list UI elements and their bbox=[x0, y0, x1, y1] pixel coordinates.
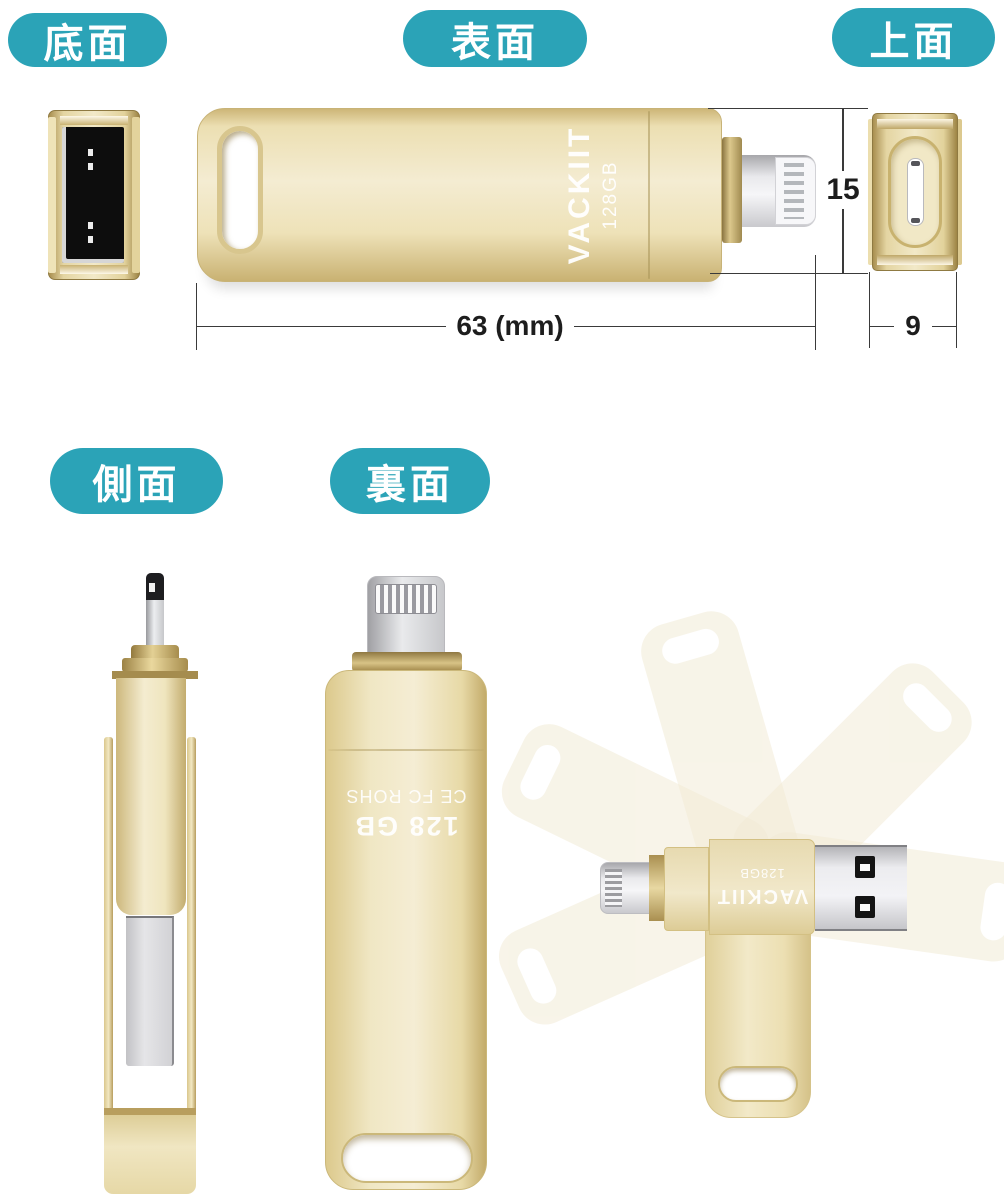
usb-contact-pin bbox=[88, 236, 93, 243]
side-frame-bottom bbox=[104, 1108, 196, 1194]
usb-contact-pin bbox=[88, 149, 93, 156]
bottom-view-right-rail bbox=[132, 117, 140, 273]
dim-15-ext-bottom bbox=[710, 273, 868, 274]
usb-hole-notch bbox=[860, 864, 870, 871]
label-side-view: 側面 bbox=[50, 448, 223, 514]
dim-63-tick-right bbox=[815, 255, 816, 350]
top-view-top-band bbox=[877, 119, 953, 129]
side-frame-arm-right bbox=[187, 737, 196, 1109]
back-print-block: 128 GB CE FC ROHS bbox=[326, 771, 486, 855]
label-front-view: 表面 bbox=[403, 10, 587, 67]
front-keyring-hole bbox=[217, 126, 263, 254]
side-usb-plug bbox=[126, 916, 174, 1066]
side-lightning-tip bbox=[146, 573, 164, 600]
dim-15-ext-top bbox=[708, 108, 868, 109]
back-capacity-text: 128 GB bbox=[353, 810, 458, 841]
front-view-swivel-seam bbox=[648, 111, 650, 279]
tongue-end-cap bbox=[911, 218, 920, 223]
label-back-view: 裏面 bbox=[330, 448, 490, 514]
front-lightning-tip bbox=[775, 157, 816, 225]
side-collar-step2 bbox=[122, 658, 188, 672]
top-view-body bbox=[872, 113, 958, 271]
dim-63-tick-left bbox=[196, 283, 197, 350]
label-front-view-text: 表面 bbox=[451, 10, 539, 68]
back-swivel-seam bbox=[328, 749, 484, 751]
ghost-keyring-hole bbox=[659, 626, 722, 667]
front-brand-text: VACKIIT bbox=[563, 126, 597, 265]
usb-hole-notch bbox=[860, 904, 870, 911]
product-diagram: 底面 表面 上面 側面 裏面 VACKIIT 128GB 15 63 (mm bbox=[0, 0, 1004, 1200]
side-lightning-notch bbox=[149, 583, 155, 592]
bottom-view-bottom-band bbox=[60, 265, 128, 274]
lightning-pins bbox=[375, 584, 437, 614]
front-view-body bbox=[197, 108, 722, 282]
label-bottom-view: 底面 bbox=[8, 13, 167, 67]
ghost-keyring-hole bbox=[898, 678, 957, 737]
label-bottom-view-text: 底面 bbox=[44, 11, 132, 69]
dim-9-tick-left bbox=[869, 272, 870, 348]
bottom-view-top-band bbox=[60, 116, 128, 125]
top-view-bottom-band bbox=[877, 255, 953, 265]
rotation-print-block: VACKIIT 128GB bbox=[710, 840, 814, 934]
ghost-keyring-hole bbox=[979, 881, 1004, 942]
label-top-view-text: 上面 bbox=[870, 9, 958, 67]
ghost-keyring-hole bbox=[516, 741, 565, 805]
back-lightning-collar bbox=[352, 652, 462, 672]
label-top-view: 上面 bbox=[832, 8, 995, 67]
usb-socket-opening bbox=[62, 127, 124, 263]
rotation-main-body: VACKIIT 128GB bbox=[709, 839, 815, 935]
dim-9-tick-right bbox=[956, 272, 957, 348]
usb-plug-hole bbox=[855, 856, 875, 878]
rotation-collar-block bbox=[664, 847, 709, 931]
label-back-view-text: 裏面 bbox=[366, 452, 454, 510]
rotation-brand-text: VACKIIT bbox=[716, 885, 809, 908]
rotation-capacity-text: 128GB bbox=[739, 867, 784, 882]
top-view-usb-tongue bbox=[907, 158, 924, 226]
dim-63-label: 63 (mm) bbox=[446, 306, 574, 346]
side-collar-step1 bbox=[131, 645, 179, 659]
swivel-frame-keyring-hole bbox=[718, 1066, 798, 1102]
lightning-pins bbox=[784, 163, 804, 219]
side-lightning-rod bbox=[146, 573, 164, 653]
usb-contact-pin bbox=[88, 163, 93, 170]
usb-plug-hole bbox=[855, 896, 875, 918]
rotation-lightning-connector bbox=[600, 862, 650, 914]
bottom-view-left-rail bbox=[48, 117, 56, 273]
back-keyring-hole bbox=[341, 1133, 473, 1183]
rotation-lightning-collar bbox=[649, 855, 664, 921]
side-inner-body bbox=[116, 678, 186, 915]
back-cert-text: CE FC ROHS bbox=[346, 785, 467, 806]
back-lightning-connector bbox=[367, 576, 445, 658]
back-view-body: 128 GB CE FC ROHS bbox=[325, 670, 487, 1190]
lightning-pins bbox=[605, 869, 622, 907]
dim-15-label: 15 bbox=[822, 171, 864, 209]
usb-contact-pin bbox=[88, 222, 93, 229]
rotation-usb-plug bbox=[815, 845, 907, 931]
dim-9-label: 9 bbox=[894, 306, 932, 346]
front-lightning-collar bbox=[722, 137, 742, 243]
front-brand-block: VACKIIT 128GB bbox=[552, 115, 632, 275]
ghost-keyring-hole bbox=[513, 944, 560, 1008]
side-frame-arm-left bbox=[104, 737, 113, 1109]
label-side-view-text: 側面 bbox=[93, 452, 181, 510]
front-capacity-text: 128GB bbox=[600, 160, 622, 229]
tongue-end-cap bbox=[911, 161, 920, 166]
